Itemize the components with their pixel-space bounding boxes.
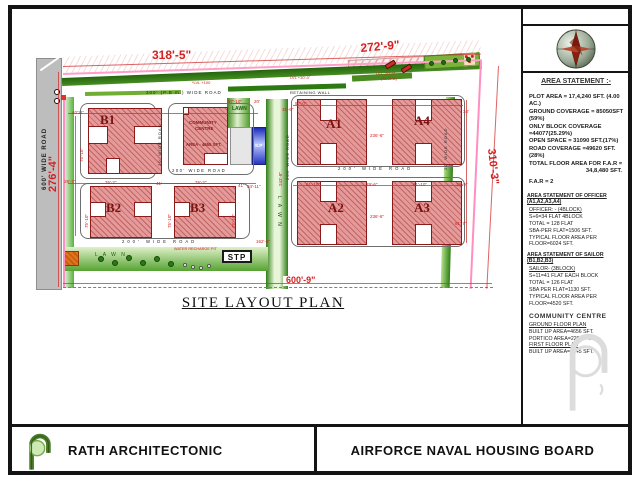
drawing-sheet: S.P STP SITE LAYOUT PLAN 600'-9" B1B2B3A… bbox=[0, 0, 640, 480]
sheet-border bbox=[8, 5, 632, 475]
